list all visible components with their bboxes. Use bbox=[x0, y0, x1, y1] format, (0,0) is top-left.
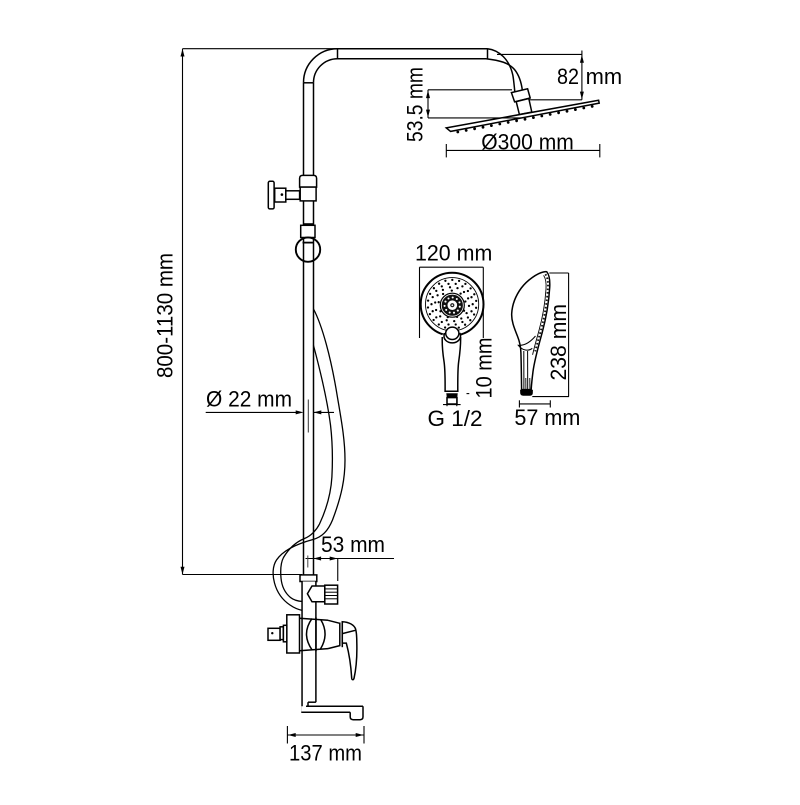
svg-text:120 mm: 120 mm bbox=[415, 241, 492, 266]
svg-text:mm: mm bbox=[586, 64, 623, 89]
svg-text:10 mm: 10 mm bbox=[472, 338, 497, 399]
svg-text:Ø300 mm: Ø300 mm bbox=[481, 130, 574, 155]
svg-text:Ø 22 mm: Ø 22 mm bbox=[206, 387, 292, 412]
svg-text:53 mm: 53 mm bbox=[321, 532, 385, 557]
svg-text:800-1130 mm: 800-1130 mm bbox=[153, 253, 178, 378]
svg-text:G 1/2: G 1/2 bbox=[428, 406, 483, 431]
svg-text:238 mm: 238 mm bbox=[546, 304, 571, 381]
svg-text:53.5 mm: 53.5 mm bbox=[403, 67, 428, 142]
svg-text:57 mm: 57 mm bbox=[514, 405, 580, 430]
svg-text:137 mm: 137 mm bbox=[289, 741, 362, 766]
svg-text:82: 82 bbox=[557, 64, 579, 89]
